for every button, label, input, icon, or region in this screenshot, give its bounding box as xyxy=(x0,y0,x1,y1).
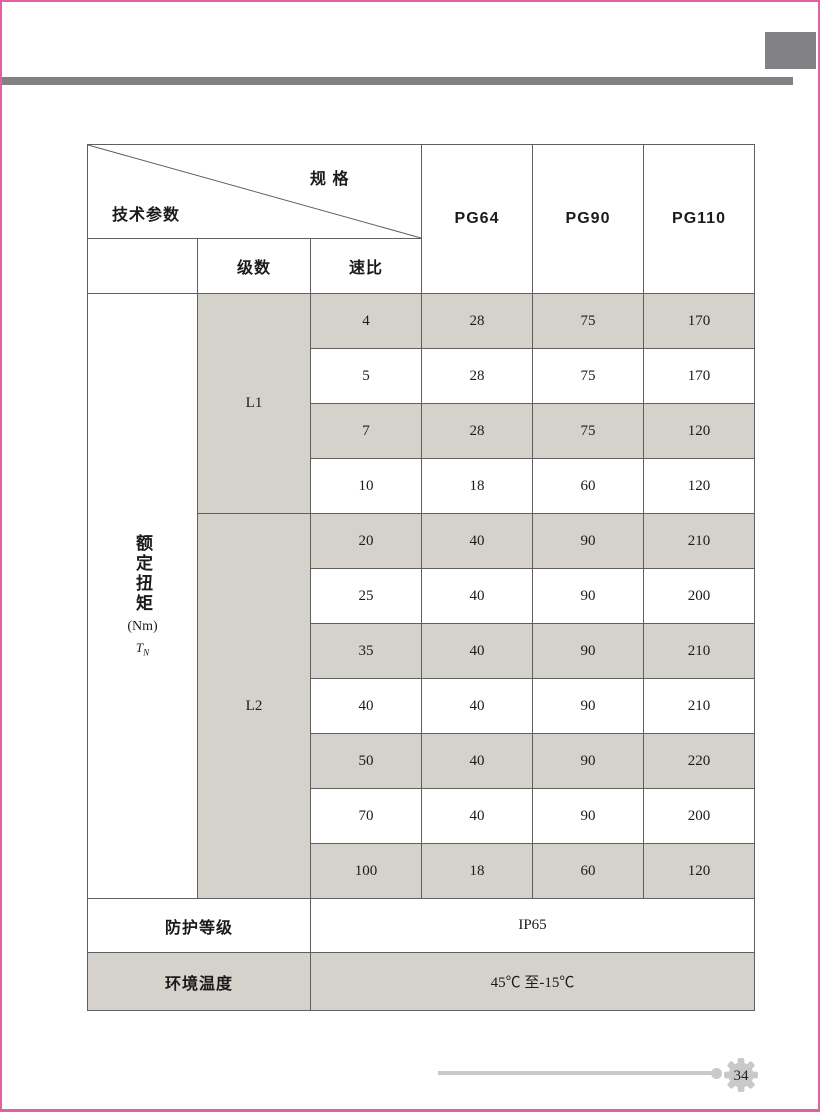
stage-cell-l2: L2 xyxy=(198,514,311,899)
cell-pg110: 170 xyxy=(644,349,755,404)
cell-ratio: 4 xyxy=(311,294,422,349)
cell-pg90: 90 xyxy=(533,789,644,844)
footer-label-protection: 防护等级 xyxy=(88,899,311,953)
cell-pg64: 28 xyxy=(422,349,533,404)
cell-pg110: 220 xyxy=(644,734,755,789)
cell-ratio: 7 xyxy=(311,404,422,459)
col-header-pg64: PG64 xyxy=(422,145,533,294)
cell-pg110: 200 xyxy=(644,789,755,844)
cell-pg90: 90 xyxy=(533,514,644,569)
diagonal-header-cell: 规 格 技术参数 xyxy=(88,145,422,239)
cell-ratio: 50 xyxy=(311,734,422,789)
gear-icon: 34 xyxy=(723,1057,759,1093)
spec-table: 规 格 技术参数 PG64 PG90 PG110 级数 速比 额定扭矩 (Nm)… xyxy=(87,144,755,1011)
torque-label-vertical: 额定扭矩 xyxy=(134,534,151,614)
cell-pg64: 18 xyxy=(422,459,533,514)
torque-unit: (Nm) xyxy=(127,619,157,635)
corner-param-label: 技术参数 xyxy=(112,201,180,225)
top-right-gray-block xyxy=(765,32,816,69)
cell-pg110: 210 xyxy=(644,624,755,679)
cell-pg64: 18 xyxy=(422,844,533,899)
cell-pg64: 40 xyxy=(422,624,533,679)
torque-symbol: TN xyxy=(136,640,149,658)
cell-pg64: 40 xyxy=(422,569,533,624)
cell-pg90: 75 xyxy=(533,349,644,404)
catalog-page: 规 格 技术参数 PG64 PG90 PG110 级数 速比 额定扭矩 (Nm)… xyxy=(0,0,820,1112)
cell-pg90: 75 xyxy=(533,404,644,459)
cell-ratio: 70 xyxy=(311,789,422,844)
cell-pg64: 40 xyxy=(422,514,533,569)
cell-ratio: 100 xyxy=(311,844,422,899)
torque-row-label-cell: 额定扭矩 (Nm) TN xyxy=(88,294,198,899)
cell-pg90: 90 xyxy=(533,569,644,624)
cell-pg64: 28 xyxy=(422,404,533,459)
cell-ratio: 25 xyxy=(311,569,422,624)
footer-label-temperature: 环境温度 xyxy=(88,953,311,1011)
stage-cell-l1: L1 xyxy=(198,294,311,514)
cell-pg110: 120 xyxy=(644,404,755,459)
page-number: 34 xyxy=(734,1068,750,1084)
subheader-stages: 级数 xyxy=(198,239,311,294)
cell-pg90: 60 xyxy=(533,459,644,514)
top-gray-rule xyxy=(2,77,793,85)
cell-pg90: 75 xyxy=(533,294,644,349)
cell-pg64: 40 xyxy=(422,789,533,844)
cell-pg64: 40 xyxy=(422,734,533,789)
corner-spec-label: 规 格 xyxy=(310,165,349,189)
col-header-pg110: PG110 xyxy=(644,145,755,294)
cell-pg110: 210 xyxy=(644,679,755,734)
cell-pg90: 90 xyxy=(533,624,644,679)
cell-ratio: 40 xyxy=(311,679,422,734)
footer-value-temperature: 45℃ 至-15℃ xyxy=(311,953,755,1011)
footer-rule-dot xyxy=(711,1068,722,1079)
cell-pg110: 170 xyxy=(644,294,755,349)
cell-pg64: 40 xyxy=(422,679,533,734)
col-header-pg90: PG90 xyxy=(533,145,644,294)
cell-pg110: 200 xyxy=(644,569,755,624)
cell-ratio: 10 xyxy=(311,459,422,514)
cell-ratio: 35 xyxy=(311,624,422,679)
cell-pg110: 210 xyxy=(644,514,755,569)
footer-value-protection: IP65 xyxy=(311,899,755,953)
footer-rule xyxy=(438,1071,715,1075)
cell-pg90: 90 xyxy=(533,734,644,789)
cell-pg90: 90 xyxy=(533,679,644,734)
subheader-ratio: 速比 xyxy=(311,239,422,294)
cell-pg64: 28 xyxy=(422,294,533,349)
cell-ratio: 5 xyxy=(311,349,422,404)
cell-pg90: 60 xyxy=(533,844,644,899)
cell-ratio: 20 xyxy=(311,514,422,569)
empty-header-cell xyxy=(88,239,198,294)
cell-pg110: 120 xyxy=(644,844,755,899)
cell-pg110: 120 xyxy=(644,459,755,514)
